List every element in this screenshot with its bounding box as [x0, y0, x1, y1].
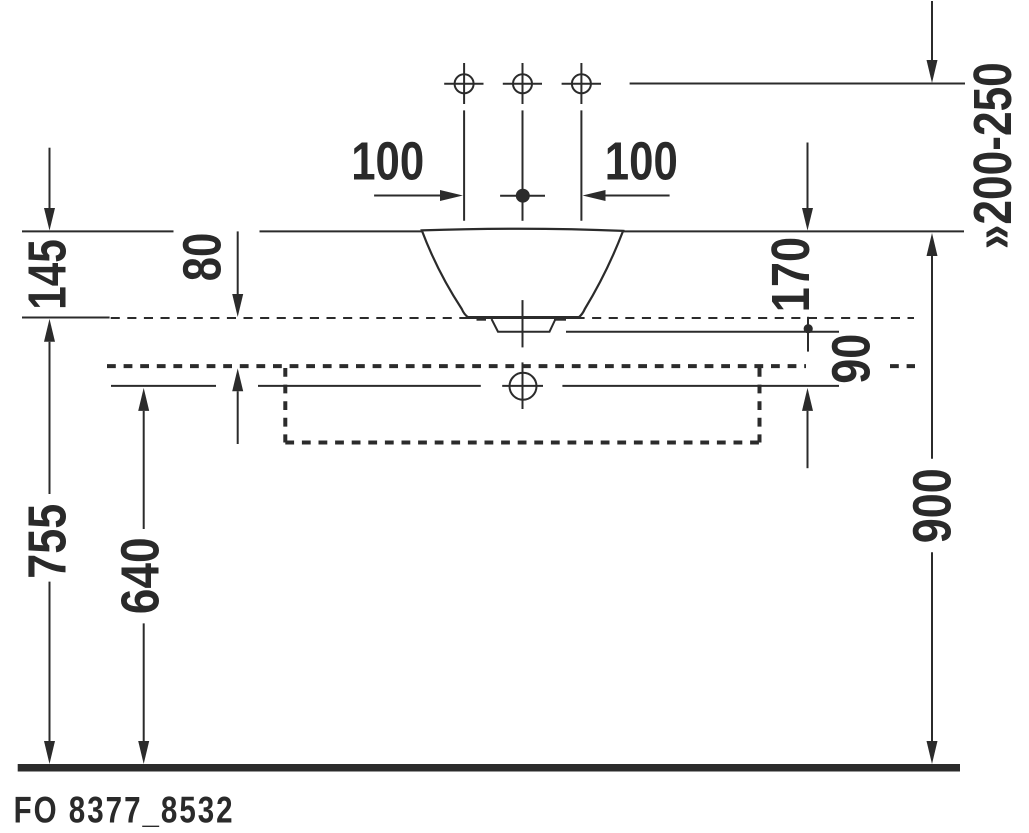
svg-text:»200-250: »200-250: [963, 62, 1023, 249]
svg-text:900: 900: [902, 468, 962, 543]
svg-text:145: 145: [18, 239, 78, 310]
svg-text:80: 80: [173, 233, 233, 282]
svg-text:90: 90: [822, 334, 882, 384]
svg-text:FO 8377_8532: FO 8377_8532: [14, 789, 235, 830]
svg-text:100: 100: [605, 131, 678, 191]
svg-text:170: 170: [761, 237, 821, 313]
svg-text:640: 640: [110, 537, 170, 614]
svg-text:755: 755: [17, 504, 77, 579]
svg-text:100: 100: [351, 131, 424, 191]
